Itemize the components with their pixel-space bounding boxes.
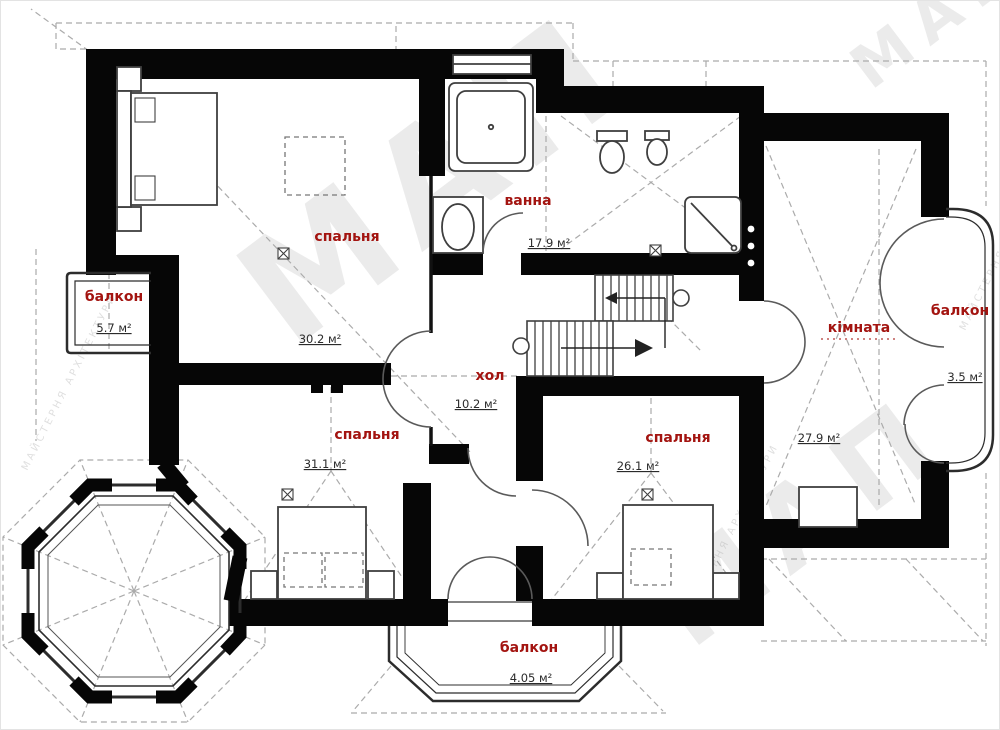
- watermark-text: МАП: [838, 1, 1000, 103]
- turret-connector-wall: [231, 557, 240, 601]
- balcony-right-rail: [946, 209, 993, 471]
- sink: [433, 197, 483, 253]
- wall-dot: [748, 260, 755, 267]
- door-threshold: [448, 602, 532, 621]
- room-area-bathroom: 17.9 м²: [528, 236, 571, 250]
- room-label-bedroom-top-left: спальня: [314, 229, 379, 245]
- room-label-bedroom-bottom-right: спальня: [645, 430, 710, 446]
- toilet: [597, 131, 627, 173]
- wall-bathroom-left: [419, 49, 445, 176]
- room-area-hall: 10.2 м²: [455, 397, 498, 411]
- room-area-bedroom-top-left: 30.2 м²: [299, 332, 342, 346]
- door-arc-room-right-2: [764, 342, 805, 383]
- wall-dot: [748, 243, 755, 250]
- wall-hall-right-top: [516, 376, 543, 481]
- room-label-room-right: кімната: [828, 320, 890, 336]
- door-arc-balcony-bottom-1: [448, 557, 490, 599]
- window-tick: [311, 385, 323, 393]
- wall-vestibule: [403, 483, 431, 601]
- wall-hall-bottom: [429, 444, 469, 464]
- wall-under-bath-right: [521, 253, 764, 275]
- wall-bottom-right: [532, 599, 764, 626]
- floor-plan: МАП МАП МАП МАЙСТЕРНЯ АРХІТЕКТУРИ МАЙСТЕ…: [0, 0, 1000, 730]
- bidet: [645, 131, 669, 165]
- door-arc-room-right-1: [764, 301, 805, 342]
- room-label-bathroom: ванна: [504, 193, 551, 209]
- wall-bottom-left: [229, 599, 448, 626]
- wall-rightwing-right-top: [921, 113, 949, 217]
- door-arc-bedroom-right: [532, 490, 588, 546]
- room-label-hall: хол: [476, 368, 505, 384]
- room-area-bedroom-bottom-right: 26.1 м²: [617, 459, 660, 473]
- dresser: [799, 487, 857, 527]
- octagon-turret: [28, 463, 240, 697]
- duct-shaft: [685, 197, 741, 253]
- bed-double-bottom-left: [251, 507, 394, 599]
- balcony-bottom-rail: [397, 626, 613, 693]
- room-label-balcony-bottom: балкон: [500, 640, 558, 656]
- wall-top-middle: [556, 86, 764, 113]
- room-label-bedroom-bottom-left: спальня: [334, 427, 399, 443]
- balcony-bottom-rail: [389, 626, 621, 701]
- wall-segment: [86, 255, 152, 273]
- watermark-subtext: МАЙСТЕРНЯ АРХІТЕКТУРИ: [18, 291, 119, 472]
- door-arc-hall-vestibule: [468, 448, 516, 496]
- room-label-balcony-right: балкон: [931, 303, 989, 319]
- bed-double-top-left: [117, 67, 217, 231]
- door-arc-balcony-right-1: [880, 219, 944, 283]
- room-area-balcony-right: 3.5 м²: [947, 370, 982, 384]
- window-tick: [331, 385, 343, 393]
- wall-mid-left-vertical: [149, 255, 179, 465]
- wall-left: [86, 49, 116, 275]
- wall-hall-right-bottom: [516, 546, 543, 601]
- balcony-right-rail: [946, 217, 985, 463]
- wall-stair-bedroom: [516, 376, 764, 396]
- wall-central-vertical-top: [739, 113, 764, 301]
- wall-central-vertical-bottom: [739, 384, 764, 626]
- room-area-bedroom-bottom-left: 31.1 м²: [304, 457, 347, 471]
- room-area-balcony-bottom: 4.05 м²: [510, 671, 553, 685]
- wall-top-right: [756, 113, 949, 141]
- stair-arrow-down: [635, 339, 653, 357]
- room-area-room-right: 27.9 м²: [798, 431, 841, 445]
- room-label-balcony-left: балкон: [85, 289, 143, 305]
- room-area-balcony-left: 5.7 м²: [96, 321, 131, 335]
- stair-newel: [673, 290, 689, 306]
- wall-under-bath-left: [431, 253, 483, 275]
- stair-newel: [513, 338, 529, 354]
- wall-mid-horizontal: [149, 363, 391, 385]
- staircase: [513, 275, 689, 376]
- shower: [449, 55, 533, 171]
- wall-dot: [748, 226, 755, 233]
